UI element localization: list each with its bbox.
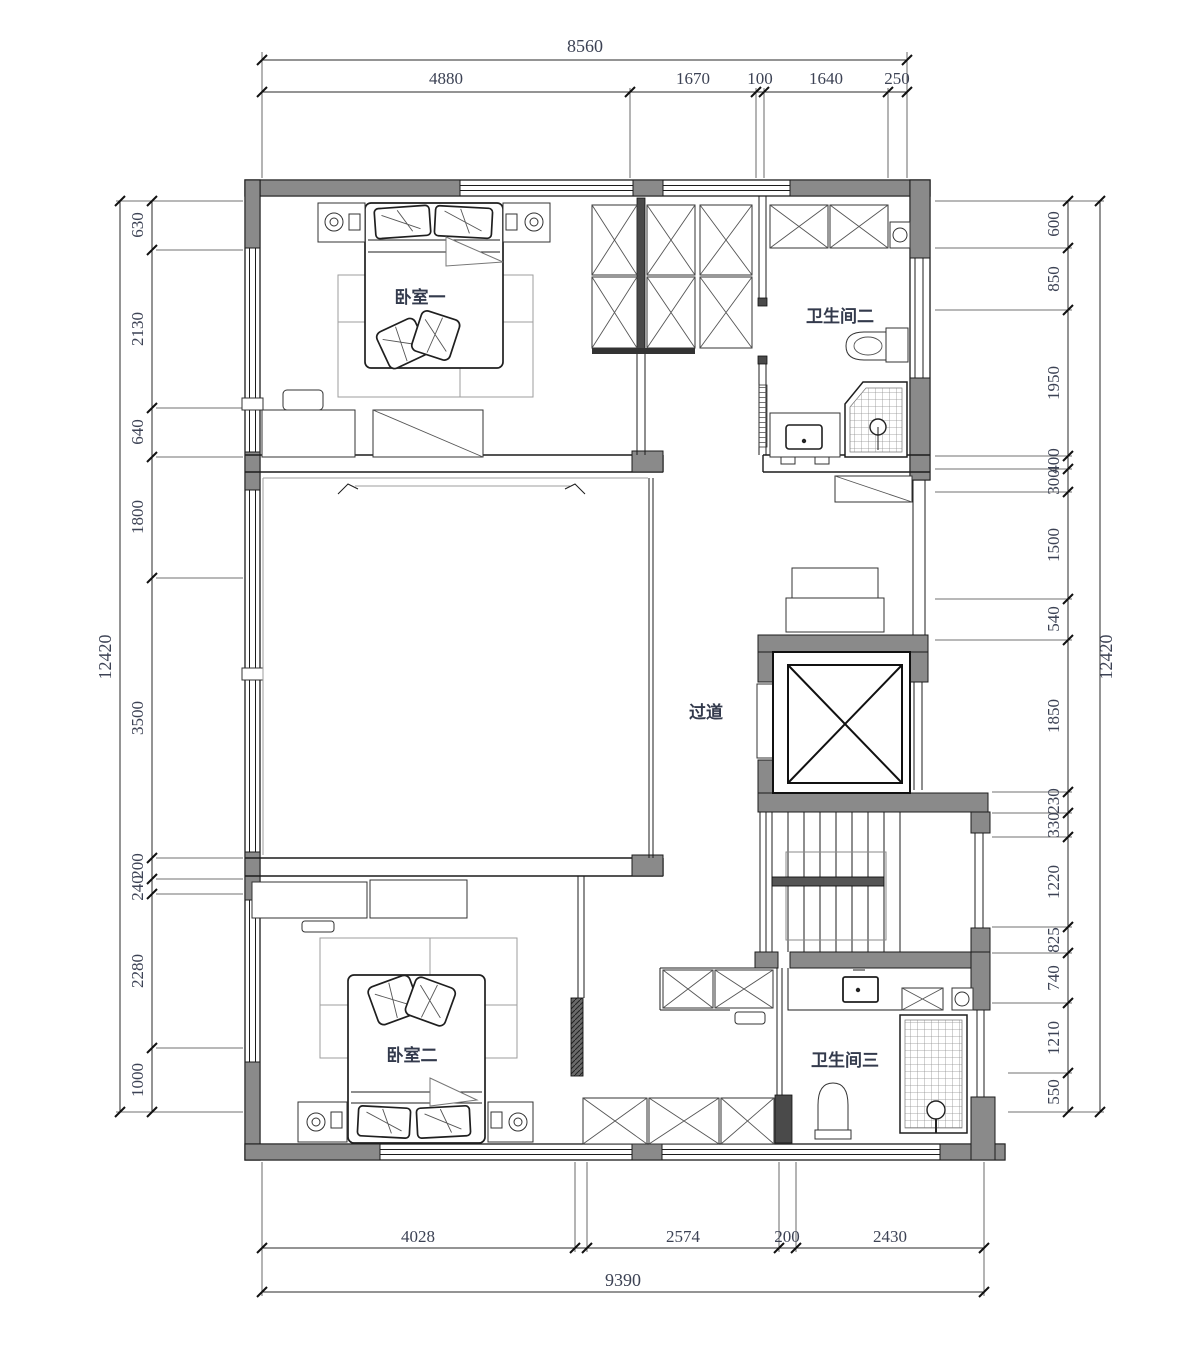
- room-label-bathroom3: 卫生间三: [811, 1050, 879, 1070]
- dim-right-14: 1210: [1044, 1021, 1063, 1055]
- dim-bottom-total: 9390: [605, 1270, 641, 1290]
- bathroom3-toilet: [818, 1083, 848, 1130]
- dim-right-5: 300: [1044, 469, 1063, 495]
- closet-box: [700, 277, 752, 348]
- closet-box: [700, 205, 752, 275]
- floor-plan-page: 8560 4880 1670 100 1640 250 4028 2574 20…: [0, 0, 1200, 1365]
- bedroom2-pillow-left: [357, 1106, 410, 1139]
- bedroom2-door-jamb: [571, 998, 583, 1076]
- closet-box: [902, 988, 943, 1010]
- closet-box: [715, 970, 773, 1008]
- closet-box: [649, 1098, 719, 1144]
- bathroom2-faucet-icon: [802, 439, 806, 443]
- dim-top-5: 250: [884, 69, 910, 88]
- closet-box: [592, 277, 637, 348]
- bedroom2-desk-1: [252, 882, 367, 918]
- bedroom2-desk-2: [370, 880, 467, 918]
- bathroom2-toilet-tank: [886, 328, 908, 362]
- dim-right-2: 850: [1044, 266, 1063, 292]
- bathroom2-sink: [786, 425, 822, 449]
- dim-left-9: 1000: [128, 1063, 147, 1097]
- bathroom3-washer-drum-icon: [955, 992, 969, 1006]
- dim-left-2: 2130: [128, 312, 147, 346]
- dim-left-total: 12420: [95, 635, 115, 680]
- dim-top-3: 100: [747, 69, 773, 88]
- dim-left-6: 200: [128, 853, 147, 879]
- dim-bottom-4: 2430: [873, 1227, 907, 1246]
- bathroom2-toilet-bowl: [846, 332, 886, 360]
- hallway-console-1: [792, 568, 878, 598]
- bathroom2-radiator: [759, 385, 767, 447]
- room-label-hallway: 过道: [689, 702, 723, 722]
- bathroom3-toilet-base: [815, 1130, 851, 1139]
- bedroom1-chair: [283, 390, 323, 410]
- bathroom3-faucet-icon: [856, 988, 860, 992]
- dim-bottom-2: 2574: [666, 1227, 701, 1246]
- floor-plan-drawing: 8560 4880 1670 100 1640 250 4028 2574 20…: [0, 0, 1200, 1365]
- hallway-console-2: [786, 598, 884, 632]
- dim-right-12: 825: [1044, 927, 1063, 953]
- dim-left-8: 2280: [128, 954, 147, 988]
- dim-top-2: 1670: [676, 69, 710, 88]
- dim-bottom-1: 4028: [401, 1227, 435, 1246]
- bathroom3-sink: [843, 977, 878, 1002]
- dim-right-1: 600: [1044, 211, 1063, 237]
- wardrobe-top: [592, 205, 752, 354]
- closet-box: [647, 277, 695, 348]
- bedroom1-desk: [262, 410, 355, 457]
- bedroom1-pillow-left: [374, 205, 431, 239]
- dim-left-1: 630: [128, 212, 147, 238]
- stair-handrail: [772, 877, 884, 886]
- dim-right-11: 1220: [1044, 865, 1063, 899]
- dim-left-4: 1800: [128, 500, 147, 534]
- closet-box: [592, 205, 637, 275]
- room-label-bedroom2: 卧室二: [387, 1045, 438, 1065]
- bedroom2-tray: [302, 921, 334, 932]
- dim-right-3: 1950: [1044, 366, 1063, 400]
- bathroom2-washer-drum-icon: [893, 228, 907, 242]
- closet-box: [770, 205, 828, 248]
- closet-box: [663, 970, 713, 1008]
- dim-right-6: 1500: [1044, 528, 1063, 562]
- dim-right-13: 740: [1044, 965, 1063, 991]
- room-label-bedroom1: 卧室一: [395, 287, 446, 307]
- bedroom1-pillow-right: [434, 206, 492, 239]
- dim-right-15: 550: [1044, 1079, 1063, 1105]
- dim-right-7: 540: [1044, 606, 1063, 632]
- dim-top-4: 1640: [809, 69, 843, 88]
- dim-right-8: 1850: [1044, 699, 1063, 733]
- closet-box: [830, 205, 888, 248]
- bathroom3-drain-icon: [927, 1101, 945, 1119]
- dim-left-3: 640: [128, 419, 147, 445]
- closet-box: [583, 1098, 647, 1144]
- room-label-bathroom2: 卫生间二: [806, 306, 874, 326]
- dim-bottom-3: 200: [774, 1227, 800, 1246]
- wall-wardrobe-divider: [637, 198, 645, 352]
- dim-right-9: 230: [1044, 788, 1063, 814]
- dim-left-7: 240: [128, 875, 147, 901]
- dim-top-total: 8560: [567, 36, 603, 56]
- closet-box: [647, 205, 695, 275]
- dim-right-10: 330: [1044, 812, 1063, 838]
- dim-left-5: 3500: [128, 701, 147, 735]
- dim-right-total: 12420: [1096, 635, 1116, 680]
- dim-top-1: 4880: [429, 69, 463, 88]
- closet-box: [721, 1098, 774, 1144]
- corridor-tray: [735, 1012, 765, 1024]
- closet-base: [592, 348, 695, 354]
